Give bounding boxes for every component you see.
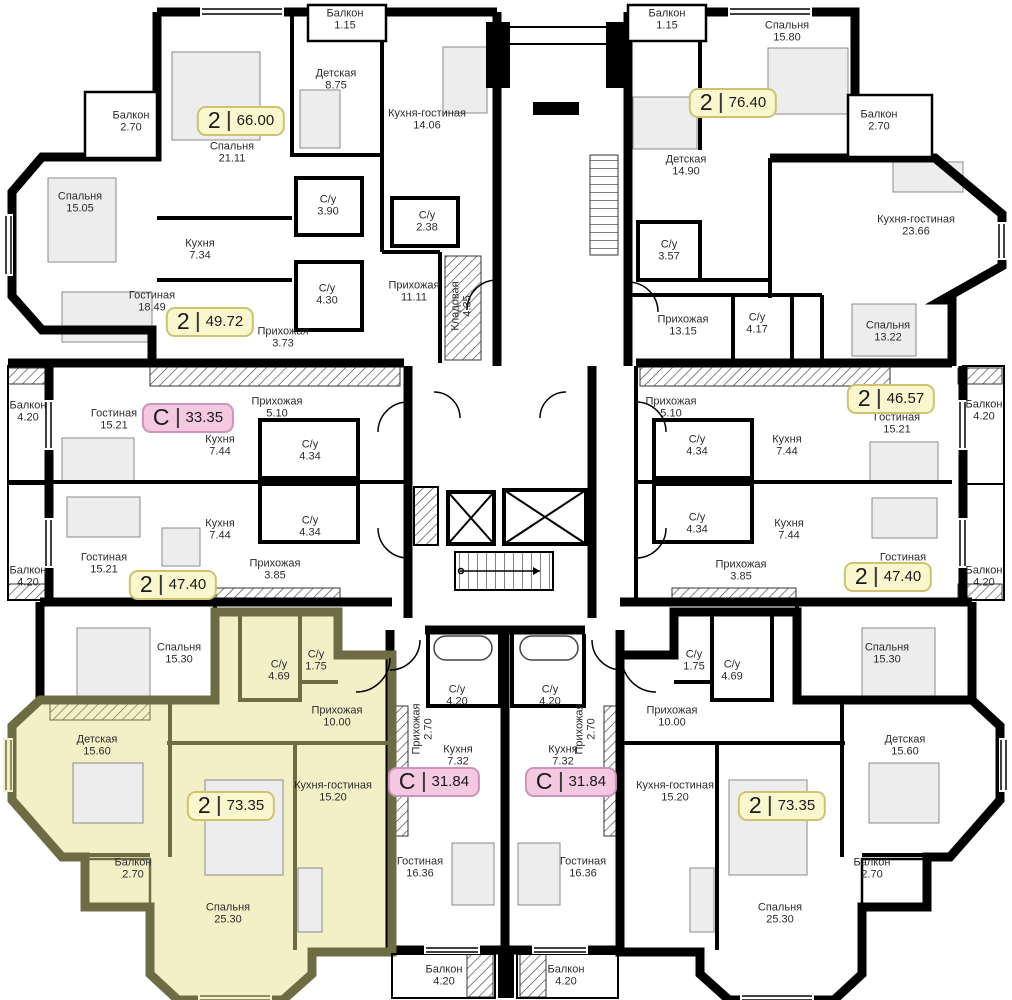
apartment-badge[interactable]: 249.72 <box>166 307 254 337</box>
vestibule <box>486 22 630 115</box>
apartment-badge[interactable]: 276.40 <box>689 88 777 118</box>
apartment-badge[interactable]: С31.84 <box>388 767 480 797</box>
apartment-badge[interactable]: 273.35 <box>187 791 275 821</box>
apartment-badge[interactable]: 266.00 <box>197 106 285 136</box>
apartment-badge[interactable]: С33.35 <box>142 403 234 433</box>
apartment-badge[interactable]: 273.35 <box>738 791 826 821</box>
apartment-badge[interactable]: 247.40 <box>129 570 217 600</box>
apartment-badge[interactable]: 247.40 <box>844 562 932 592</box>
floor-plan: Балкон2.70Спальня21.11Спальня15.05Детска… <box>0 0 1012 1000</box>
apartment-badge[interactable]: С31.84 <box>525 767 617 797</box>
elevator-core <box>414 487 586 590</box>
apartment-badge[interactable]: 246.57 <box>847 384 935 414</box>
floorplan-drawing <box>0 0 1012 1000</box>
